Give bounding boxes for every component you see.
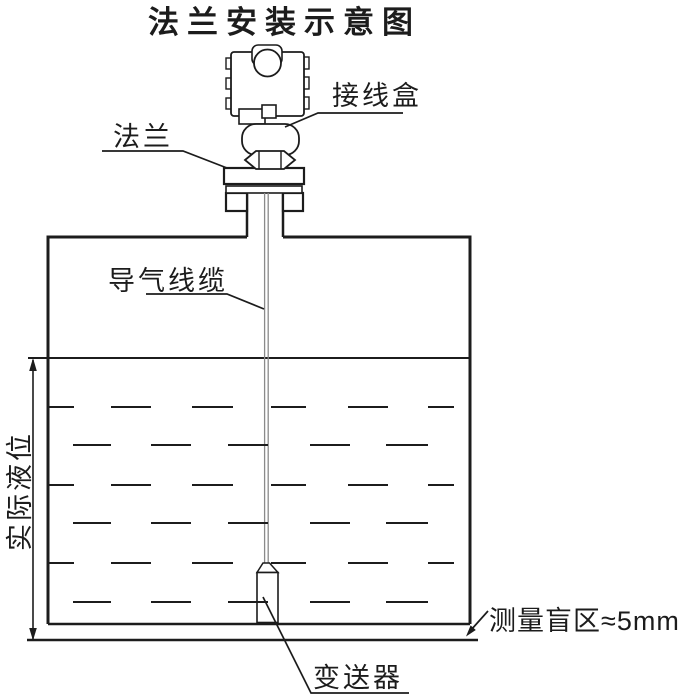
- flange-leader: [102, 151, 227, 168]
- label-blind-zone: 测量盲区≈5mm: [466, 606, 680, 637]
- counter-flange-plate: [226, 186, 302, 193]
- air-cable-label: 导气线缆: [108, 266, 228, 296]
- tank-outline: [27, 237, 478, 640]
- flange-plate: [224, 168, 304, 184]
- transmitter-head: [226, 45, 309, 169]
- probe-body: [257, 573, 278, 623]
- junction-box-label: 接线盒: [332, 81, 422, 111]
- dimension-arrow-up: [29, 358, 37, 371]
- label-transmitter: 变送器: [263, 597, 409, 693]
- actual-level-label: 实际液位: [5, 431, 35, 551]
- label-air-cable: 导气线缆: [108, 266, 264, 309]
- flange-installation-diagram: 法兰安装示意图: [0, 0, 700, 700]
- air-guide-cable: [265, 193, 269, 565]
- blind-zone-arrow-shaft: [471, 611, 488, 630]
- nozzle-right-shoulder: [283, 193, 303, 211]
- probe-taper: [257, 563, 278, 573]
- diagram-title: 法兰安装示意图: [148, 5, 421, 40]
- head-conduit-block-small: [262, 105, 276, 118]
- dimension-arrow-down: [29, 628, 37, 641]
- air-cable-leader: [146, 294, 264, 309]
- label-flange: 法兰: [102, 122, 227, 168]
- flange-label: 法兰: [113, 122, 173, 152]
- transmitter-label: 变送器: [313, 663, 403, 693]
- water-marks: [48, 407, 454, 602]
- diagram-page: 法兰安装示意图: [0, 0, 700, 700]
- nozzle-left-shoulder: [226, 193, 247, 211]
- hex-nut: [245, 151, 295, 169]
- head-sight-circle: [254, 50, 281, 77]
- blind-zone-label: 测量盲区≈5mm: [489, 606, 680, 636]
- transmitter-probe: [257, 563, 278, 623]
- label-actual-level: 实际液位: [5, 431, 35, 551]
- head-conduit-block: [239, 109, 265, 124]
